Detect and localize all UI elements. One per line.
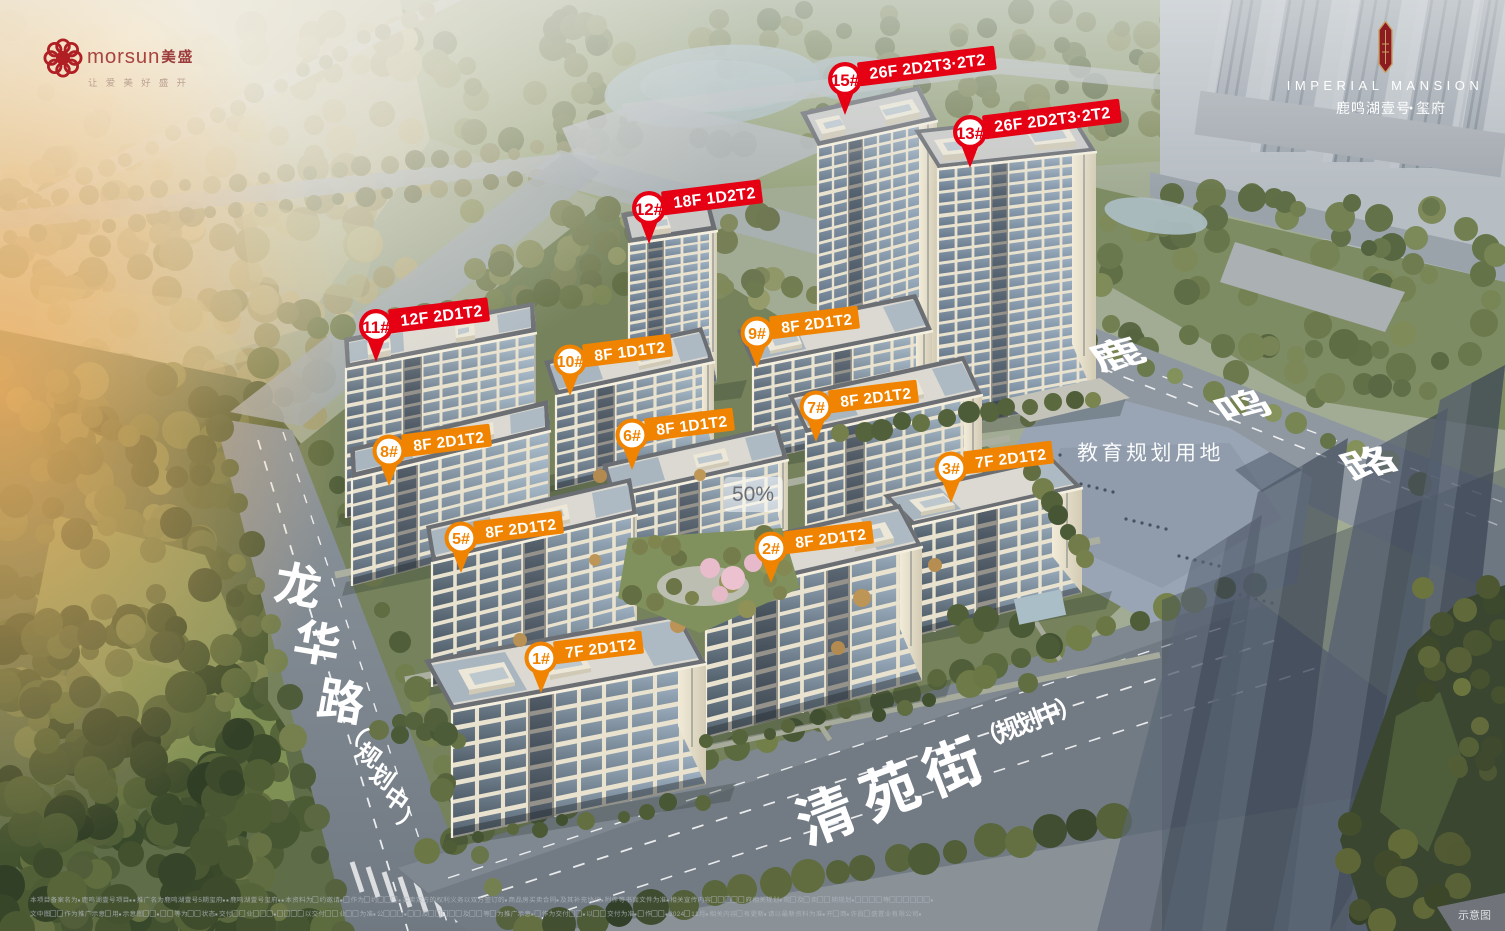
svg-text:9#: 9# [748,326,766,343]
svg-text:morsun: morsun [87,45,160,68]
svg-text:12#: 12# [635,200,664,219]
svg-text:5: 5 [198,897,202,904]
svg-text:1: 1 [695,911,699,918]
svg-text:2#: 2# [762,541,780,558]
svg-text:1#: 1# [532,651,550,668]
svg-text:8#: 8# [380,444,398,461]
svg-text:5#: 5# [452,531,470,548]
svg-text:6#: 6# [623,428,641,445]
svg-text:11#: 11# [362,318,390,337]
svg-text:50%: 50% [732,483,774,506]
svg-text:3#: 3# [942,461,960,478]
svg-text:7#: 7# [807,400,825,417]
svg-text:IMPERIAL MANSION: IMPERIAL MANSION [1287,78,1483,93]
svg-text:10#: 10# [557,354,584,371]
svg-text:15#: 15# [831,71,860,90]
svg-text:4: 4 [681,911,685,918]
svg-text:13#: 13# [956,124,985,143]
